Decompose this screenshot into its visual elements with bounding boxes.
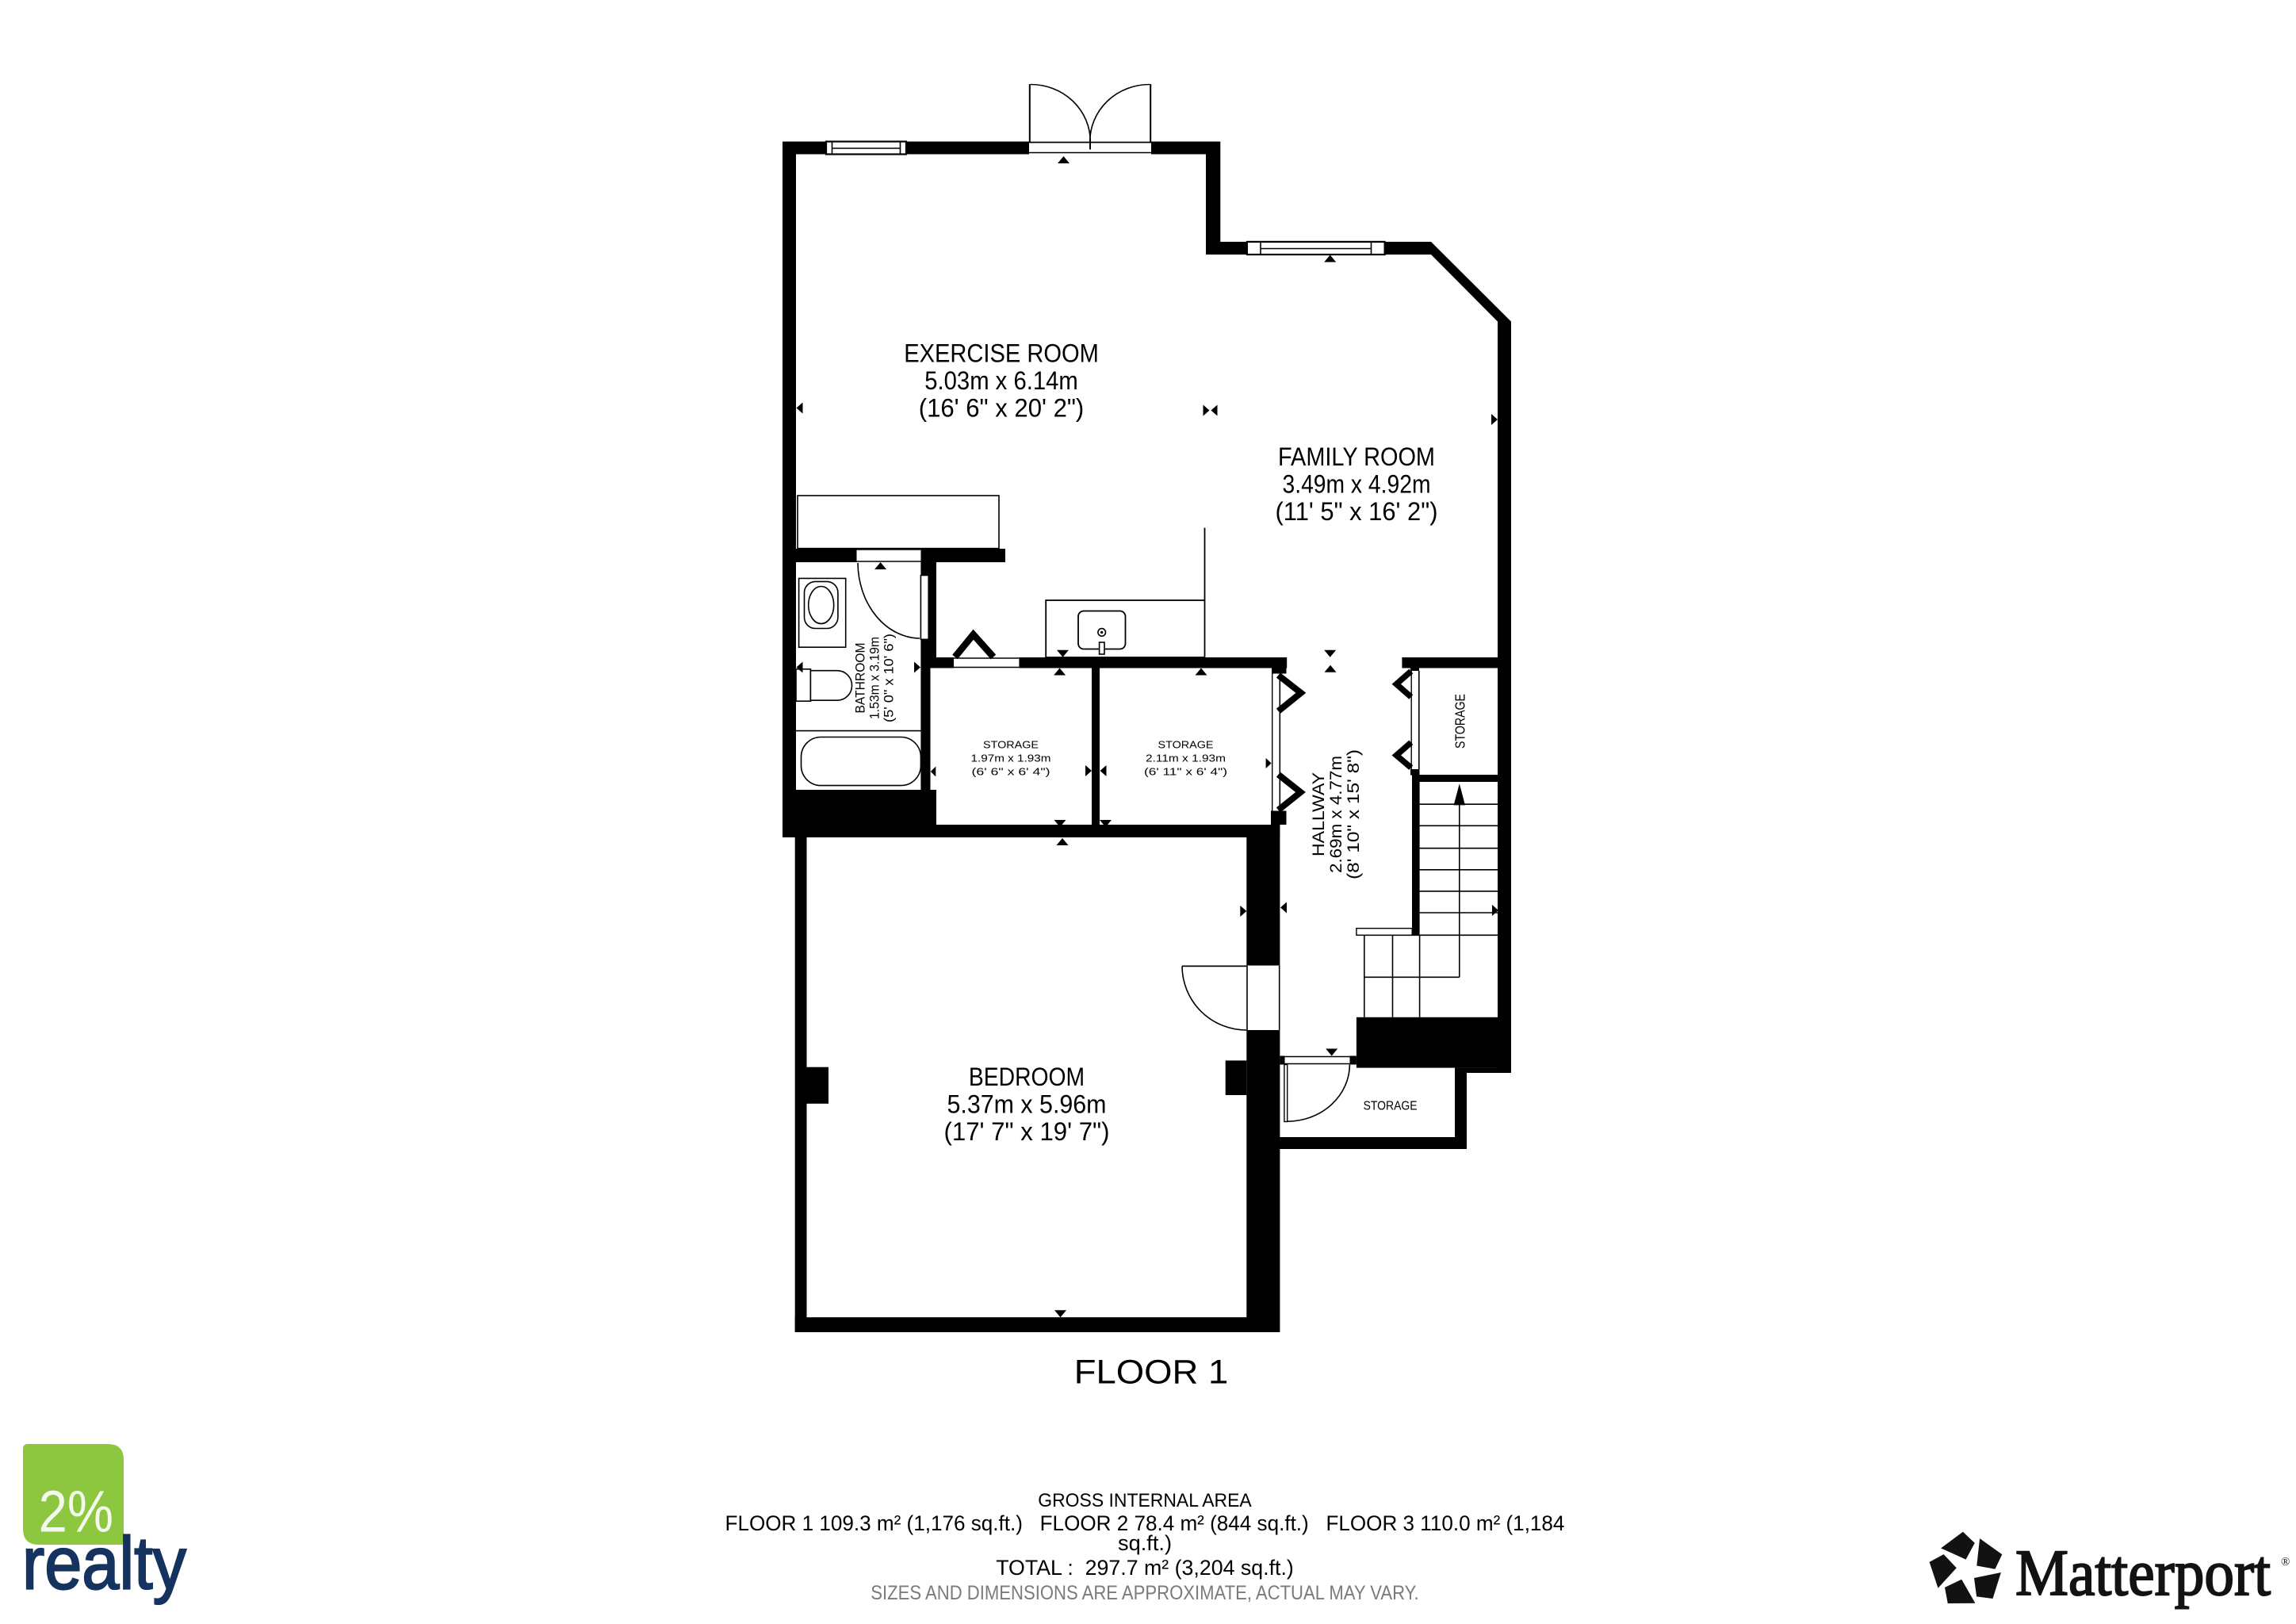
svg-text:(6' 11" x 6' 4"): (6' 11" x 6' 4") bbox=[1144, 766, 1227, 778]
svg-text:2.11m x 1.93m: 2.11m x 1.93m bbox=[1146, 753, 1226, 764]
svg-text:STORAGE: STORAGE bbox=[1452, 694, 1468, 749]
svg-text:STORAGE: STORAGE bbox=[983, 739, 1039, 751]
svg-text:STORAGE: STORAGE bbox=[1364, 1100, 1418, 1113]
svg-text:BEDROOM: BEDROOM bbox=[969, 1063, 1085, 1091]
svg-text:5.37m x 5.96m: 5.37m x 5.96m bbox=[947, 1090, 1107, 1119]
svg-text:STORAGE: STORAGE bbox=[1158, 739, 1214, 751]
svg-text:(8' 10" x 15' 8"): (8' 10" x 15' 8") bbox=[1345, 749, 1363, 879]
svg-text:1.97m x 1.93m: 1.97m x 1.93m bbox=[971, 753, 1051, 764]
svg-text:FLOOR 1: FLOOR 1 bbox=[1074, 1353, 1229, 1391]
svg-text:BATHROOM: BATHROOM bbox=[853, 643, 868, 714]
svg-text:(11' 5" x 16' 2"): (11' 5" x 16' 2") bbox=[1276, 497, 1438, 526]
svg-text:(17' 7" x 19' 7"): (17' 7" x 19' 7") bbox=[944, 1117, 1110, 1146]
svg-text:1.53m x 3.19m: 1.53m x 3.19m bbox=[867, 637, 882, 719]
svg-text:FAMILY ROOM: FAMILY ROOM bbox=[1278, 442, 1435, 471]
svg-text:(6' 6" x 6' 4"): (6' 6" x 6' 4") bbox=[972, 766, 1050, 778]
svg-text:realty: realty bbox=[22, 1522, 186, 1605]
svg-text:5.03m x 6.14m: 5.03m x 6.14m bbox=[924, 366, 1078, 395]
svg-text:Matterport: Matterport bbox=[2015, 1536, 2271, 1609]
svg-text:EXERCISE ROOM: EXERCISE ROOM bbox=[904, 339, 1099, 368]
svg-text:(5' 0" x 10' 6"): (5' 0" x 10' 6") bbox=[882, 634, 897, 722]
svg-text:3.49m x 4.92m: 3.49m x 4.92m bbox=[1283, 470, 1431, 499]
svg-text:HALLWAY: HALLWAY bbox=[1310, 772, 1328, 856]
svg-text:®: ® bbox=[2281, 1556, 2290, 1568]
svg-text:GROSS INTERNAL AREA: GROSS INTERNAL AREA bbox=[1038, 1490, 1252, 1511]
svg-text:2.69m x 4.77m: 2.69m x 4.77m bbox=[1327, 756, 1345, 873]
svg-text:SIZES AND DIMENSIONS ARE APPRO: SIZES AND DIMENSIONS ARE APPROXIMATE, AC… bbox=[871, 1582, 1418, 1604]
svg-text:TOTAL : 297.7 m² (3,204 sq.ft: TOTAL : 297.7 m² (3,204 sq.ft.) bbox=[996, 1556, 1294, 1580]
svg-text:(16' 6" x 20' 2"): (16' 6" x 20' 2") bbox=[919, 394, 1085, 423]
svg-text:sq.ft.): sq.ft.) bbox=[1118, 1531, 1172, 1555]
